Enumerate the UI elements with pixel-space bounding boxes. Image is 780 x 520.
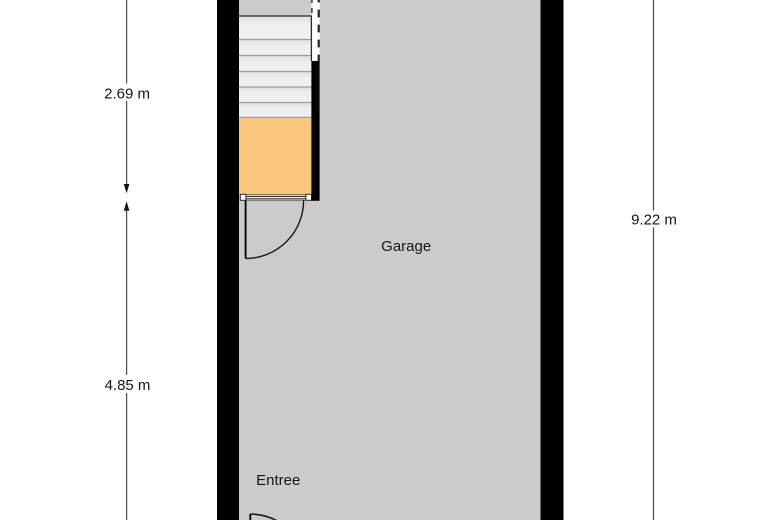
svg-text:4.85 m: 4.85 m — [105, 377, 151, 394]
svg-text:9.22 m: 9.22 m — [631, 211, 677, 228]
svg-text:Entree: Entree — [256, 472, 300, 489]
svg-text:Garage: Garage — [381, 238, 431, 255]
svg-text:2.69 m: 2.69 m — [104, 85, 150, 102]
